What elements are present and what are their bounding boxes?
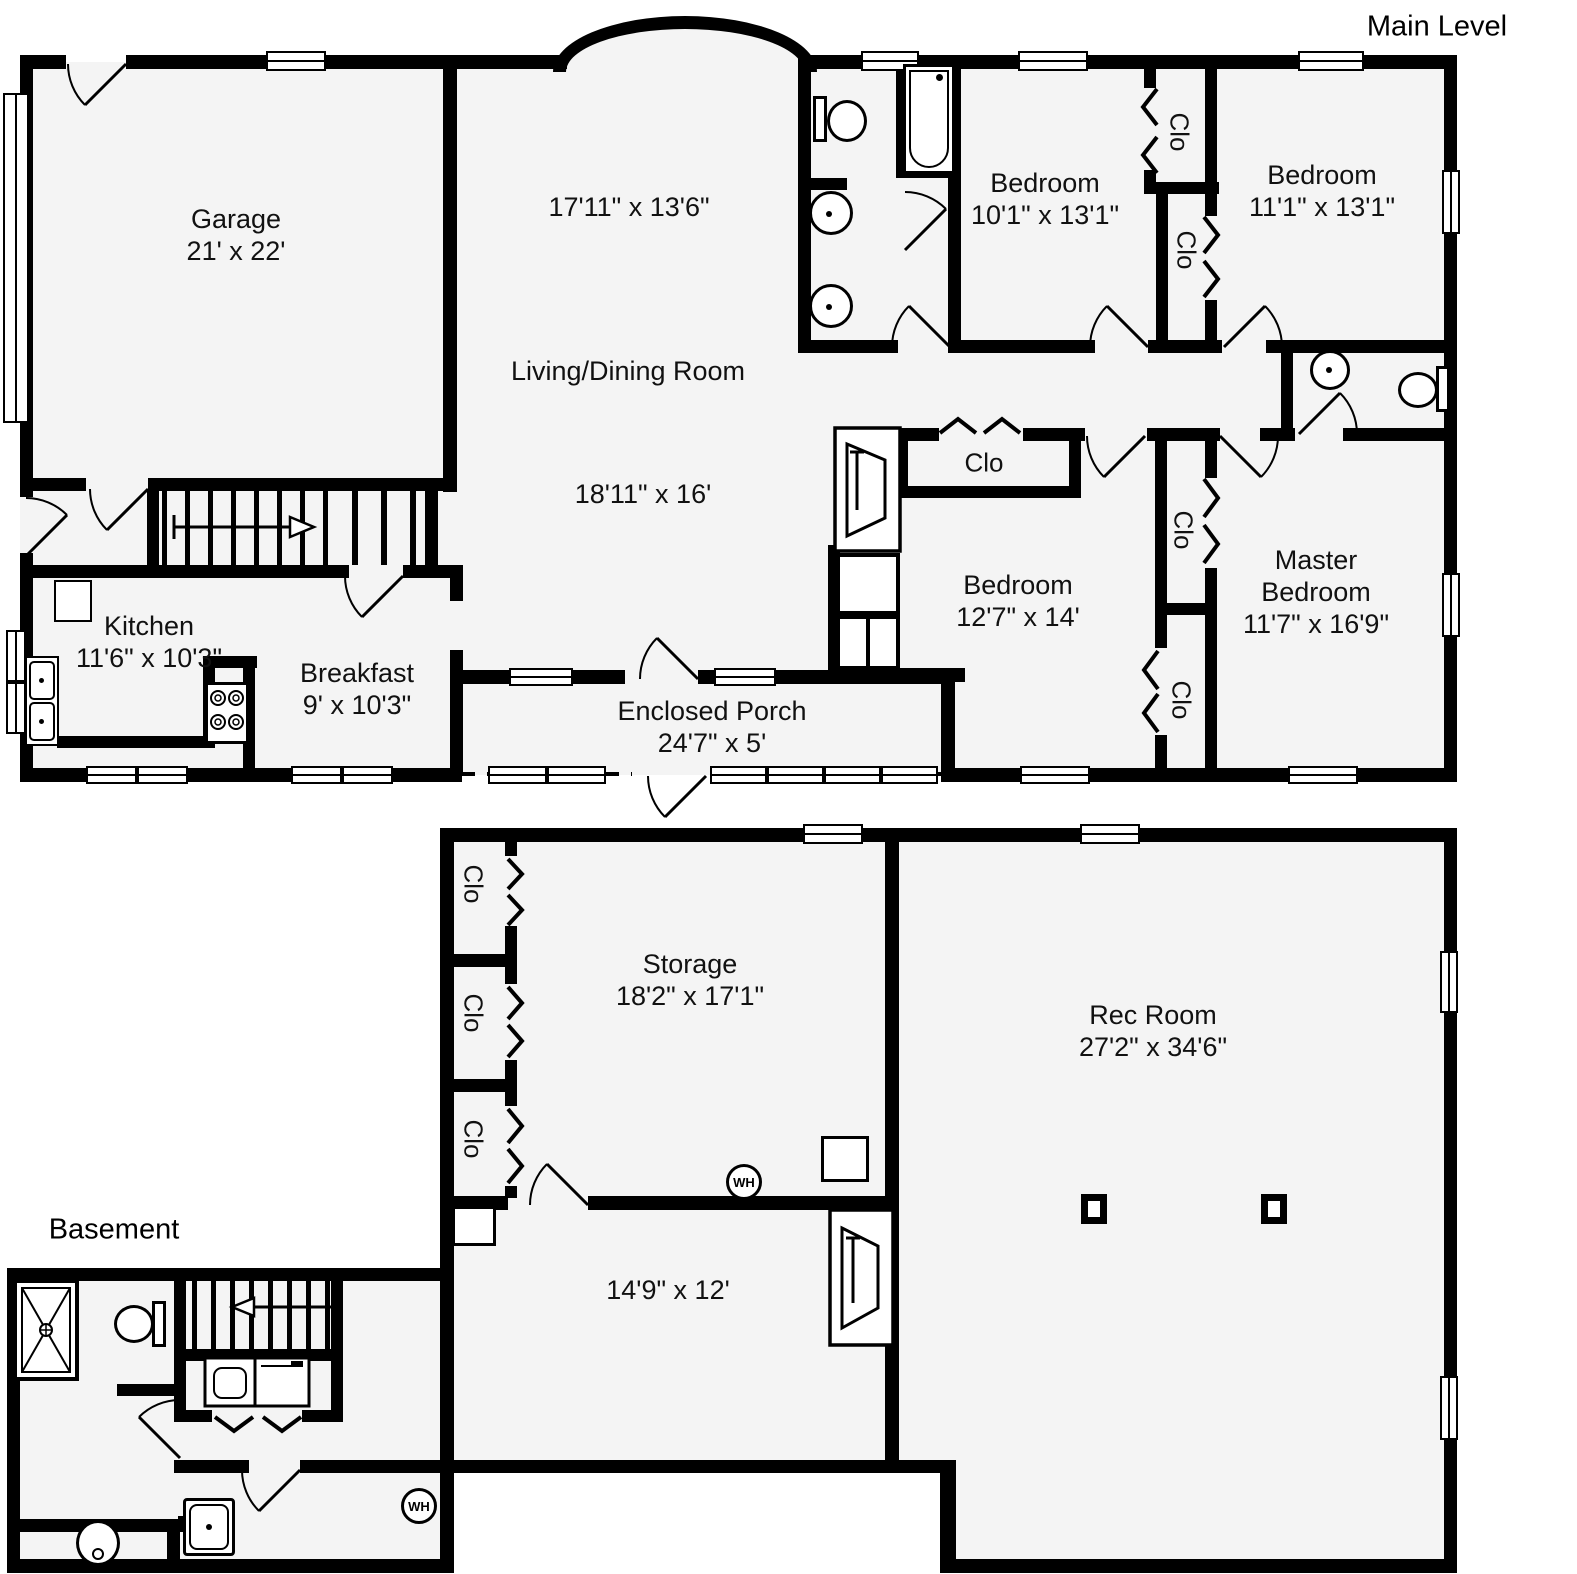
- door-swing: [899, 186, 952, 256]
- door-swing: [1081, 430, 1151, 483]
- sink-drain-icon: [92, 1548, 104, 1560]
- sink-drain-icon: [39, 678, 44, 683]
- window: [342, 766, 393, 784]
- bathtub-drain-icon: [936, 74, 943, 81]
- cabinet-icon: [452, 1206, 496, 1246]
- basement-title: Basement: [49, 1214, 180, 1247]
- window: [767, 766, 824, 784]
- room-label-bedroom: Bedroom 10'1" x 13'1": [971, 168, 1119, 232]
- room-dims: 12'7" x 14': [956, 602, 1079, 632]
- sink-drain-icon: [39, 719, 44, 724]
- window: [1440, 1376, 1458, 1440]
- closet-door-icon: [937, 416, 979, 436]
- closet-door-icon: [505, 892, 525, 928]
- room-label-basement-room-dims: 14'9" x 12': [606, 1275, 729, 1307]
- stair-direction-arrow: [228, 1293, 340, 1321]
- closet-door-icon: [1140, 86, 1160, 128]
- cabinet-icon: [866, 615, 900, 670]
- window: [824, 766, 881, 784]
- cabinet-icon: [821, 1136, 869, 1182]
- room-label-living-dims: 18'11" x 16': [575, 479, 712, 511]
- closet-label: Clo: [1171, 230, 1202, 269]
- room-name: Breakfast: [300, 658, 414, 688]
- door-swing: [84, 483, 154, 537]
- sink-drain-icon: [1326, 367, 1332, 373]
- room-name: Bedroom: [963, 570, 1073, 600]
- room-dims: 10'1" x 13'1": [971, 200, 1119, 230]
- bay-window: [553, 16, 817, 72]
- room-name: Bedroom: [990, 168, 1100, 198]
- window: [1298, 51, 1364, 71]
- room-dims: 11'1" x 13'1": [1249, 192, 1395, 222]
- stair-direction-arrow: [168, 512, 318, 542]
- window: [266, 51, 326, 71]
- room-name: Kitchen: [104, 611, 194, 641]
- closet-door-icon: [1201, 522, 1221, 566]
- sink-drain-icon: [826, 304, 832, 310]
- room-dims: 9' x 10'3": [303, 690, 411, 720]
- water-heater-icon: WH: [726, 1164, 762, 1200]
- window: [714, 668, 776, 686]
- closet-door-icon: [1141, 648, 1161, 692]
- room-dims: 21' x 22': [187, 236, 286, 266]
- door-swing: [1293, 387, 1363, 440]
- window: [803, 824, 863, 844]
- room-name: Storage: [643, 949, 738, 979]
- closet-label: Clo: [458, 1119, 489, 1158]
- garage-door: [3, 93, 29, 423]
- window: [1442, 573, 1460, 637]
- sink-drain-icon: [826, 211, 832, 217]
- closet-label: Clo: [1166, 680, 1197, 719]
- closet-label: Clo: [1164, 112, 1195, 151]
- toilet-tank-icon: [1436, 366, 1450, 412]
- faucet-icon: [178, 1516, 186, 1532]
- closet-door-icon: [1201, 258, 1221, 300]
- closet-door-icon: [1141, 691, 1161, 735]
- room-name: Garage: [191, 204, 281, 234]
- water-heater-icon: WH: [401, 1488, 437, 1524]
- room-label-bedroom: Bedroom 11'1" x 13'1": [1249, 160, 1395, 224]
- window: [547, 766, 606, 784]
- room-dims: 17'11" x 13'6": [548, 192, 709, 222]
- door-swing: [339, 570, 409, 624]
- room-label-bedroom: Bedroom 12'7" x 14': [956, 570, 1079, 634]
- room-name: Master Bedroom: [1261, 545, 1371, 607]
- cooktop-icon: [205, 682, 249, 744]
- door-swing: [1084, 300, 1154, 353]
- dashed-wall: [462, 772, 488, 776]
- support-post: [1261, 1194, 1287, 1224]
- bathtub-basin-icon: [909, 70, 949, 168]
- room-dims: 24'7" x 5': [658, 728, 766, 758]
- sink-drain-icon: [206, 1524, 212, 1530]
- toilet-icon: [114, 1305, 154, 1343]
- room-name: Rec Room: [1089, 1000, 1217, 1030]
- fireplace-icon: [828, 1208, 896, 1348]
- closet-door-icon: [981, 416, 1023, 436]
- faucet-icon: [801, 299, 809, 313]
- room-label-dining-dims: 17'11" x 13'6": [548, 192, 709, 224]
- room-label-enclosed-porch: Enclosed Porch 24'7" x 5': [617, 696, 806, 760]
- door-swing: [60, 56, 132, 112]
- window: [509, 668, 573, 686]
- toilet-icon: [1398, 372, 1438, 408]
- closet-door-icon: [1140, 134, 1160, 176]
- main-level-title: Main Level: [1367, 11, 1507, 44]
- closet-door-icon: [505, 856, 525, 892]
- closet-door-icon: [505, 1022, 525, 1060]
- closet-label: Clo: [1168, 510, 1199, 549]
- basement-floor: [948, 1455, 1457, 1567]
- window: [86, 766, 137, 784]
- room-dims: 14'9" x 12': [606, 1275, 729, 1305]
- door-swing: [1218, 300, 1288, 353]
- room-label-storage: Storage 18'2" x 17'1": [616, 949, 764, 1013]
- room-dims: 18'11" x 16': [575, 479, 712, 509]
- fixture-foot-icon: [84, 1565, 91, 1572]
- window: [6, 682, 26, 734]
- room-label-breakfast: Breakfast 9' x 10'3": [300, 658, 414, 722]
- water-heater-label: WH: [733, 1175, 755, 1190]
- room-label-kitchen: Kitchen 11'6" x 10'3": [76, 611, 222, 675]
- toilet-tank-icon: [813, 96, 827, 142]
- door-swing: [236, 1464, 306, 1517]
- closet-door-icon: [1201, 476, 1221, 520]
- room-label-rec-room: Rec Room 27'2" x 34'6": [1079, 1000, 1227, 1064]
- fireplace-icon: [833, 426, 903, 554]
- door-swing: [634, 632, 704, 685]
- window: [1080, 824, 1140, 844]
- window: [291, 766, 342, 784]
- fixture-foot-icon: [101, 1565, 108, 1572]
- water-heater-label: WH: [408, 1499, 430, 1514]
- room-name: Enclosed Porch: [617, 696, 806, 726]
- dashed-wall: [606, 772, 632, 776]
- window: [1288, 766, 1358, 784]
- window: [1020, 766, 1090, 784]
- washer-dryer-icon: [203, 1356, 311, 1408]
- closet-door-icon: [505, 1146, 525, 1186]
- toilet-tank-icon: [152, 1301, 166, 1347]
- closet-door-icon: [1201, 214, 1221, 256]
- window: [881, 766, 938, 784]
- room-label-garage: Garage 21' x 22': [187, 204, 286, 268]
- cabinet-icon: [836, 553, 900, 615]
- window: [1440, 951, 1458, 1013]
- window: [6, 630, 26, 682]
- room-dims: 11'7" x 16'9": [1243, 609, 1389, 639]
- closet-door-icon: [505, 1106, 525, 1146]
- door-swing: [1214, 430, 1284, 483]
- closet-door-icon: [260, 1414, 304, 1434]
- shower-glass-icon: [21, 1287, 71, 1373]
- faucet-icon: [801, 206, 809, 220]
- door-swing: [886, 300, 956, 353]
- door-swing: [524, 1158, 594, 1211]
- door-swing: [642, 770, 712, 823]
- closet-label: Clo: [458, 993, 489, 1032]
- room-label-master-bedroom: Master Bedroom 11'7" x 16'9": [1236, 545, 1396, 641]
- closet-label: Clo: [964, 448, 1003, 479]
- window: [710, 766, 767, 784]
- door-swing: [20, 492, 74, 562]
- closet-label: Clo: [458, 864, 489, 903]
- dashed-wall: [938, 772, 950, 776]
- window: [488, 766, 547, 784]
- room-name: Bedroom: [1267, 160, 1377, 190]
- toilet-icon: [827, 100, 867, 142]
- room-dims: 18'2" x 17'1": [616, 981, 764, 1011]
- cabinet-icon: [836, 615, 870, 670]
- basement-floor: [446, 835, 1457, 1467]
- room-label-living-dining: Living/Dining Room: [511, 356, 745, 388]
- closet-door-icon: [505, 984, 525, 1022]
- door-swing: [133, 1394, 186, 1464]
- room-dims: 27'2" x 34'6": [1079, 1032, 1227, 1062]
- room-dims: 11'6" x 10'3": [76, 643, 222, 673]
- floor-plan-page: WH WH Main Level Basement Garage 21' x 2…: [0, 0, 1577, 1574]
- window: [1442, 170, 1460, 234]
- window: [1018, 51, 1088, 71]
- support-post: [1081, 1194, 1107, 1224]
- room-name: Living/Dining Room: [511, 356, 745, 386]
- closet-door-icon: [212, 1414, 256, 1434]
- faucet-icon: [1323, 342, 1337, 350]
- window: [137, 766, 188, 784]
